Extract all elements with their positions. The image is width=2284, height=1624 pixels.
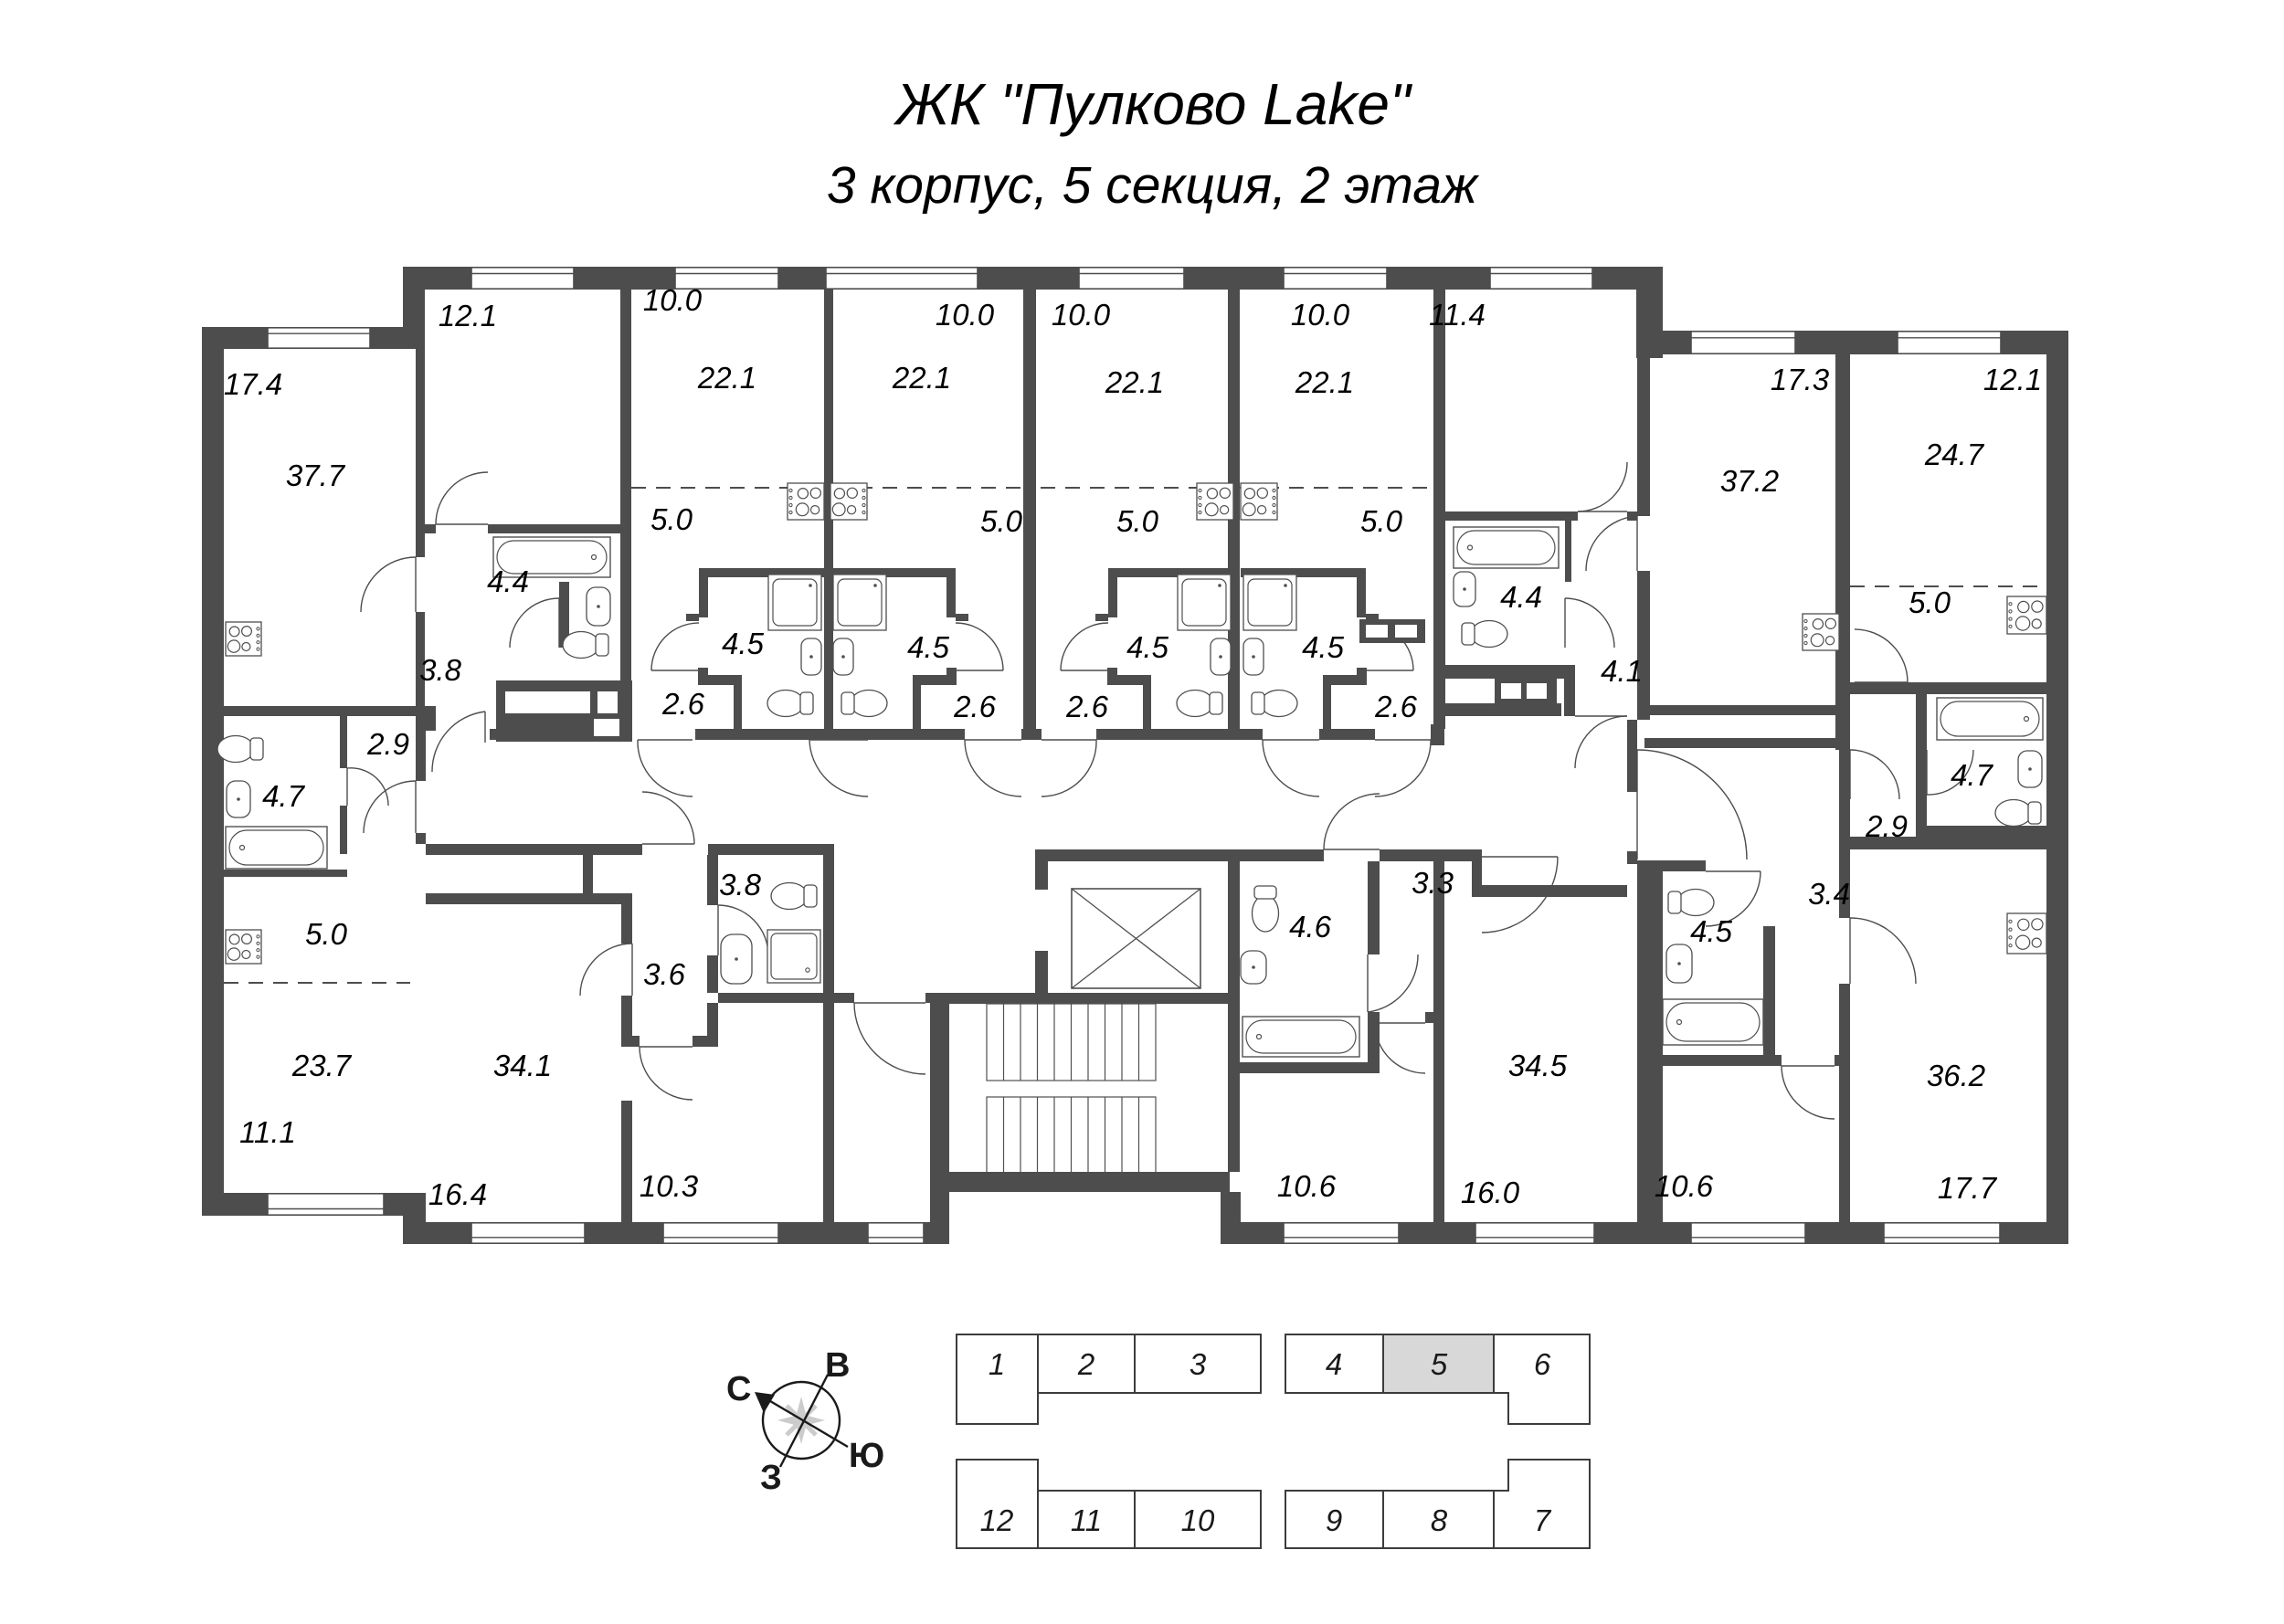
svg-text:5.0: 5.0 xyxy=(1360,504,1403,538)
svg-text:2: 2 xyxy=(1077,1347,1094,1381)
svg-text:10.3: 10.3 xyxy=(640,1169,699,1203)
svg-text:17.4: 17.4 xyxy=(224,367,282,401)
svg-text:3.8: 3.8 xyxy=(719,868,762,902)
svg-text:4.5: 4.5 xyxy=(1126,630,1169,664)
svg-text:5.0: 5.0 xyxy=(980,504,1023,538)
svg-text:В: В xyxy=(825,1346,850,1385)
svg-text:12.1: 12.1 xyxy=(1983,363,2042,396)
svg-text:16.0: 16.0 xyxy=(1461,1176,1520,1209)
svg-text:3: 3 xyxy=(1190,1347,1207,1381)
svg-text:4: 4 xyxy=(1326,1347,1342,1381)
svg-text:5.0: 5.0 xyxy=(305,917,348,951)
svg-text:37.2: 37.2 xyxy=(1720,464,1779,498)
svg-text:4.7: 4.7 xyxy=(1951,758,1994,792)
svg-text:34.5: 34.5 xyxy=(1508,1049,1568,1082)
svg-text:4.5: 4.5 xyxy=(1690,914,1733,948)
svg-text:4.7: 4.7 xyxy=(262,779,306,813)
svg-text:2.9: 2.9 xyxy=(366,727,409,761)
svg-text:7: 7 xyxy=(1534,1503,1552,1537)
svg-text:10.6: 10.6 xyxy=(1655,1169,1714,1203)
svg-text:22.1: 22.1 xyxy=(1105,365,1164,399)
svg-text:11: 11 xyxy=(1071,1503,1102,1537)
svg-text:22.1: 22.1 xyxy=(892,361,951,395)
svg-text:17.3: 17.3 xyxy=(1771,363,1830,396)
svg-text:3 корпус, 5 секция, 2 этаж: 3 корпус, 5 секция, 2 этаж xyxy=(827,156,1480,215)
svg-text:4.4: 4.4 xyxy=(1500,580,1542,614)
svg-text:3.8: 3.8 xyxy=(419,653,462,687)
svg-text:3.3: 3.3 xyxy=(1412,866,1454,900)
svg-text:9: 9 xyxy=(1326,1503,1342,1537)
svg-text:16.4: 16.4 xyxy=(428,1177,487,1211)
svg-text:4.1: 4.1 xyxy=(1601,654,1643,688)
svg-text:22.1: 22.1 xyxy=(1295,365,1354,399)
svg-text:10.6: 10.6 xyxy=(1277,1169,1337,1203)
svg-text:23.7: 23.7 xyxy=(291,1049,353,1082)
svg-text:4.5: 4.5 xyxy=(722,627,765,660)
svg-text:Ю: Ю xyxy=(849,1437,884,1475)
svg-text:2.6: 2.6 xyxy=(1374,690,1418,723)
svg-text:12: 12 xyxy=(980,1503,1014,1537)
svg-text:1: 1 xyxy=(989,1347,1005,1381)
svg-text:З: З xyxy=(760,1459,782,1497)
svg-text:8: 8 xyxy=(1431,1503,1448,1537)
svg-text:4.4: 4.4 xyxy=(487,564,529,598)
svg-text:10.0: 10.0 xyxy=(1291,298,1350,332)
svg-text:37.7: 37.7 xyxy=(286,459,346,492)
svg-text:3.6: 3.6 xyxy=(643,957,686,991)
svg-text:36.2: 36.2 xyxy=(1927,1059,1985,1092)
svg-text:10: 10 xyxy=(1181,1503,1215,1537)
svg-text:4.6: 4.6 xyxy=(1289,910,1332,944)
svg-text:24.7: 24.7 xyxy=(1924,438,1985,471)
svg-text:2.6: 2.6 xyxy=(1065,690,1109,723)
svg-text:11.1: 11.1 xyxy=(239,1115,296,1149)
svg-text:С: С xyxy=(726,1370,751,1408)
svg-text:10.0: 10.0 xyxy=(643,283,703,317)
svg-text:11.4: 11.4 xyxy=(1429,298,1486,332)
svg-text:ЖК "Пулково Lake": ЖК "Пулково Lake" xyxy=(893,71,1413,137)
svg-text:2.6: 2.6 xyxy=(953,690,997,723)
svg-text:3.4: 3.4 xyxy=(1808,877,1850,911)
svg-text:10.0: 10.0 xyxy=(936,298,995,332)
svg-text:4.5: 4.5 xyxy=(1302,630,1345,664)
svg-text:22.1: 22.1 xyxy=(697,361,756,395)
svg-text:10.0: 10.0 xyxy=(1052,298,1111,332)
svg-text:2.9: 2.9 xyxy=(1865,809,1908,843)
svg-text:5.0: 5.0 xyxy=(1116,504,1159,538)
svg-text:12.1: 12.1 xyxy=(439,299,497,332)
svg-text:5: 5 xyxy=(1431,1347,1448,1381)
svg-text:34.1: 34.1 xyxy=(493,1049,552,1082)
svg-text:6: 6 xyxy=(1534,1347,1551,1381)
svg-text:2.6: 2.6 xyxy=(661,687,705,721)
svg-text:5.0: 5.0 xyxy=(1909,585,1951,619)
svg-text:4.5: 4.5 xyxy=(907,630,950,664)
svg-text:5.0: 5.0 xyxy=(650,502,693,536)
svg-text:17.7: 17.7 xyxy=(1938,1171,1998,1205)
